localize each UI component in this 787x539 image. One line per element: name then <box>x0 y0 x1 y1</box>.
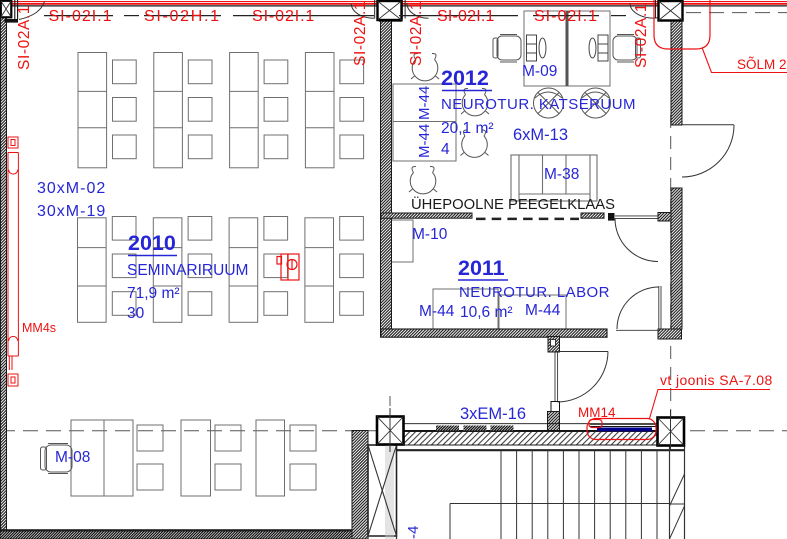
svg-text:NEUROTUR. KATSERUUM: NEUROTUR. KATSERUUM <box>441 96 636 113</box>
svg-text:SI-02A.1: SI-02A.1 <box>352 1 369 66</box>
svg-text:SEMINARIRUUM: SEMINARIRUUM <box>127 262 248 279</box>
svg-text:20,1 m²: 20,1 m² <box>441 120 494 137</box>
svg-text:SI-02I.1: SI-02I.1 <box>534 8 598 25</box>
svg-text:M-09: M-09 <box>522 63 557 80</box>
svg-text:SI-02A.1: SI-02A.1 <box>16 5 33 70</box>
svg-text:6xM-13: 6xM-13 <box>513 126 568 144</box>
svg-text:SI-02A.1: SI-02A.1 <box>408 1 425 66</box>
svg-text:2012: 2012 <box>441 66 489 90</box>
svg-text:71,9 m²: 71,9 m² <box>127 285 180 302</box>
svg-text:vt joonis SA-7.08: vt joonis SA-7.08 <box>660 372 773 388</box>
svg-text:M-08: M-08 <box>55 449 90 466</box>
svg-text:2010: 2010 <box>128 231 176 255</box>
svg-text:30: 30 <box>127 305 145 322</box>
svg-text:M-10: M-10 <box>412 226 448 243</box>
svg-text:SI-02I.1: SI-02I.1 <box>49 8 113 25</box>
svg-text:SI-02H.1: SI-02H.1 <box>144 8 221 25</box>
svg-text:M-44: M-44 <box>416 86 433 120</box>
svg-text:30xM-19: 30xM-19 <box>37 203 106 220</box>
svg-text:MM14: MM14 <box>578 405 616 420</box>
svg-text:3xEM-16: 3xEM-16 <box>460 405 526 423</box>
svg-text:NEUROTUR. LABOR: NEUROTUR. LABOR <box>459 284 610 301</box>
svg-text:ÜHEPOOLNE PEEGELKLAAS: ÜHEPOOLNE PEEGELKLAAS <box>411 195 615 213</box>
svg-text:M-44: M-44 <box>416 124 433 158</box>
svg-text:SI-02I.1: SI-02I.1 <box>252 8 315 25</box>
svg-text:M-38: M-38 <box>544 166 579 183</box>
svg-text:M-44: M-44 <box>525 302 561 319</box>
svg-text:M-44: M-44 <box>419 303 455 320</box>
svg-text:10,6 m²: 10,6 m² <box>460 304 513 321</box>
svg-text:2011: 2011 <box>458 256 505 280</box>
svg-text:30xM-02: 30xM-02 <box>37 180 106 197</box>
svg-text:-4: -4 <box>405 526 422 539</box>
svg-text:SI-02A.1: SI-02A.1 <box>633 3 650 68</box>
svg-text:MM4s: MM4s <box>22 321 56 335</box>
svg-text:SI-02I.1: SI-02I.1 <box>437 8 495 25</box>
svg-text:SÕLM 2: SÕLM 2 <box>737 57 787 72</box>
svg-text:4: 4 <box>441 141 450 158</box>
